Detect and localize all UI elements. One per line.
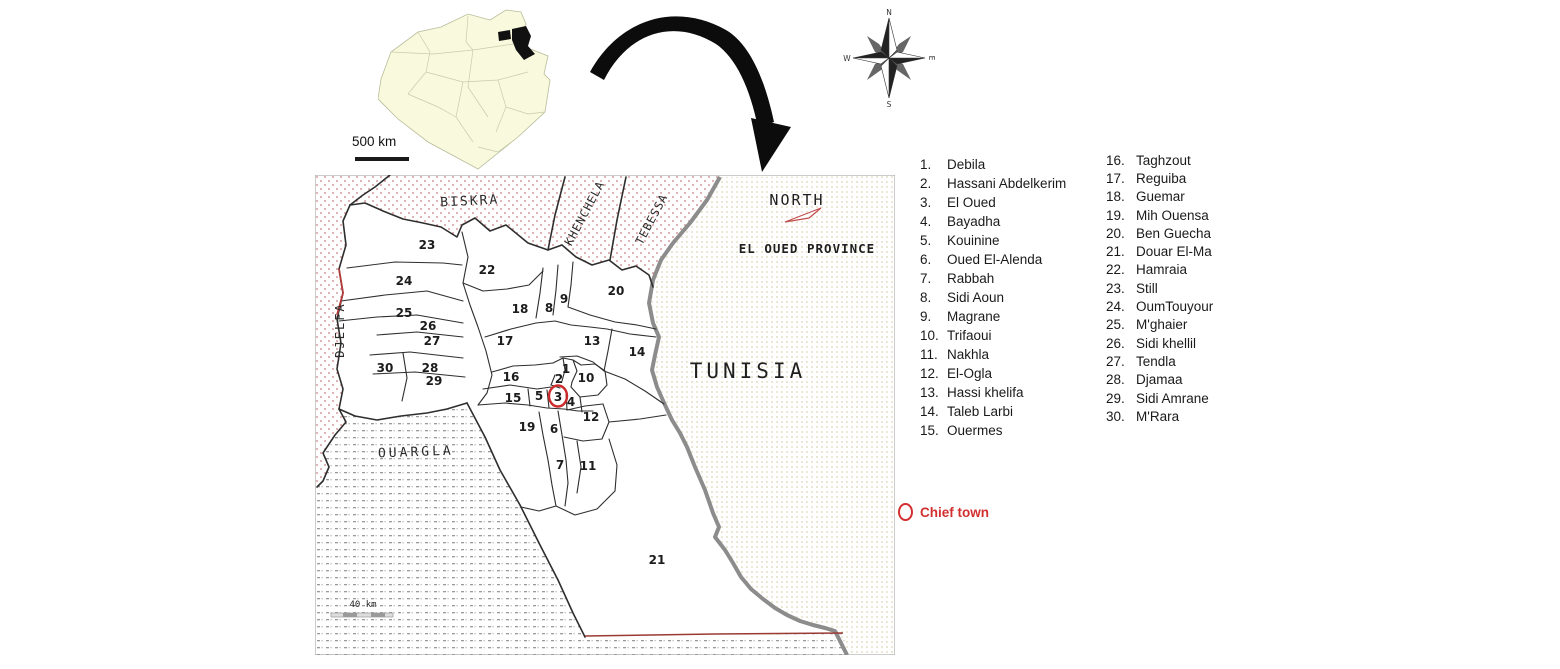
legend-item-name: Still [1136,281,1158,296]
legend-item-number: 4. [920,214,947,229]
district-number-19: 19 [519,420,536,434]
district-number-7: 7 [556,458,564,472]
district-number-8: 8 [545,301,553,315]
legend-item-name: Tendla [1136,354,1176,369]
legend-item-number: 17. [1106,171,1136,186]
legend-item-name: Nakhla [947,347,989,362]
legend-item-number: 15. [920,423,947,438]
legend-item: 27.Tendla [1106,352,1213,370]
legend-item-name: Reguiba [1136,171,1186,186]
legend-item-number: 27. [1106,354,1136,369]
legend-item: 12.El-Ogla [920,364,1066,383]
legend-column-2: 16.Taghzout17.Reguiba18.Guemar19.Mih Oue… [1106,151,1213,425]
chief-town-key-label: Chief town [920,505,989,520]
legend-item: 1.Debila [920,155,1066,174]
district-number-30: 30 [377,361,394,375]
legend-item-name: Oued El-Alenda [947,252,1042,267]
compass-main-points [853,18,925,98]
legend-item: 21.Douar El-Ma [1106,242,1213,260]
legend-item-number: 14. [920,404,947,419]
legend-item: 29.Sidi Amrane [1106,389,1213,407]
legend-item-name: Hassi khelifa [947,385,1024,400]
legend-item-name: Taleb Larbi [947,404,1013,419]
legend-item: 22.Hamraia [1106,261,1213,279]
district-number-27: 27 [424,334,441,348]
district-number-2: 2 [555,372,563,386]
legend-item-number: 18. [1106,189,1136,204]
neighbor-label-biskra: BISKRA [440,192,500,210]
legend-item-name: El-Ogla [947,366,992,381]
legend-item-number: 3. [920,195,947,210]
legend-item-number: 30. [1106,409,1136,424]
el-oued-province-map: NORTH EL OUED PROVINCE TUNISIA 40 km BIS… [315,175,895,655]
legend-item-number: 5. [920,233,947,248]
legend-item-name: Kouinine [947,233,1000,248]
district-number-26: 26 [420,319,437,333]
chief-town-key: Chief town [898,503,989,521]
legend-item: 24.OumTouyour [1106,297,1213,315]
legend-item-name: Sidi Amrane [1136,391,1209,406]
legend-item: 13.Hassi khelifa [920,383,1066,402]
tunisia-label: TUNISIA [690,359,807,383]
locator-arrow [558,0,798,200]
province-map-svg: NORTH EL OUED PROVINCE TUNISIA 40 km BIS… [315,175,895,655]
legend-item-number: 24. [1106,299,1136,314]
legend-item: 4.Bayadha [920,212,1066,231]
legend-item-number: 20. [1106,226,1136,241]
legend-item-name: Rabbah [947,271,994,286]
legend-item-number: 28. [1106,372,1136,387]
legend-item: 2.Hassani Abdelkerim [920,174,1066,193]
legend-item-number: 13. [920,385,947,400]
legend-item-name: Hassani Abdelkerim [947,176,1066,191]
legend-item-number: 11. [920,347,947,362]
legend-item-name: Djamaa [1136,372,1183,387]
legend-item: 18.Guemar [1106,188,1213,206]
district-number-29: 29 [426,374,443,388]
district-number-11: 11 [580,459,597,473]
legend-item: 9.Magrane [920,307,1066,326]
legend-item-number: 8. [920,290,947,305]
district-number-25: 25 [396,306,413,320]
legend-item-name: Bayadha [947,214,1000,229]
district-number-18: 18 [512,302,529,316]
legend-item-name: El Oued [947,195,996,210]
compass-w-label: W [843,54,851,63]
district-number-3: 3 [554,390,562,404]
neighbor-label-ouargla: OUARGLA [378,444,454,462]
compass-rose: N S W E [843,8,935,108]
legend-item-name: Magrane [947,309,1000,324]
legend-item-name: Sidi khellil [1136,336,1196,351]
legend-item-number: 7. [920,271,947,286]
legend-item: 23.Still [1106,279,1213,297]
legend-item: 17.Reguiba [1106,169,1213,187]
legend-item: 7.Rabbah [920,269,1066,288]
legend-item-name: M'ghaier [1136,317,1187,332]
legend-item-number: 23. [1106,281,1136,296]
legend-item-name: Douar El-Ma [1136,244,1212,259]
legend-item-number: 9. [920,309,947,324]
legend-item-number: 19. [1106,208,1136,223]
legend-column-1: 1.Debila2.Hassani Abdelkerim3.El Oued4.B… [920,155,1066,440]
district-number-10: 10 [578,371,595,385]
legend-item-name: Debila [947,157,985,172]
legend-item-name: Guemar [1136,189,1185,204]
legend-item: 20.Ben Guecha [1106,224,1213,242]
chief-town-key-circle-icon [898,503,913,521]
algeria-inset-svg [378,2,562,172]
legend-item-number: 2. [920,176,947,191]
legend-item-name: Hamraia [1136,262,1187,277]
district-number-4: 4 [567,395,575,409]
locator-arrow-body [590,16,774,128]
legend-item: 11.Nakhla [920,345,1066,364]
district-number-5: 5 [535,389,543,403]
legend-item: 8.Sidi Aoun [920,288,1066,307]
legend-item: 14.Taleb Larbi [920,402,1066,421]
legend-item-number: 12. [920,366,947,381]
legend-item-name: Taghzout [1136,153,1191,168]
locator-arrow-head [751,118,791,172]
legend-item-number: 26. [1106,336,1136,351]
district-number-17: 17 [497,334,514,348]
district-number-24: 24 [396,274,413,288]
neighbor-label-djelfa: DJELFA [333,302,347,357]
inset-scale-bar [355,157,409,161]
compass-e-label: E [927,56,935,61]
legend-item-number: 22. [1106,262,1136,277]
legend-item: 10.Trifaoui [920,326,1066,345]
legend-item-number: 25. [1106,317,1136,332]
legend-item-number: 21. [1106,244,1136,259]
province-title-label: EL OUED PROVINCE [739,241,875,256]
legend-item-number: 16. [1106,153,1136,168]
legend-item: 19.Mih Ouensa [1106,206,1213,224]
algeria-inset-map [378,2,562,172]
district-number-14: 14 [629,345,646,359]
legend-item-number: 10. [920,328,947,343]
district-number-6: 6 [550,422,558,436]
figure-canvas: 500 km [0,0,1560,669]
map-scale-label: 40 km [349,600,376,610]
legend-item-name: Sidi Aoun [947,290,1004,305]
district-number-23: 23 [419,238,436,252]
compass-n-label: N [886,8,892,17]
legend-item: 15.Ouermes [920,421,1066,440]
district-number-22: 22 [479,263,496,277]
legend-item: 30.M'Rara [1106,407,1213,425]
district-number-12: 12 [583,410,600,424]
legend-item: 5.Kouinine [920,231,1066,250]
legend-item-name: M'Rara [1136,409,1179,424]
legend-item: 26.Sidi khellil [1106,334,1213,352]
legend-item-number: 1. [920,157,947,172]
legend-item-number: 6. [920,252,947,267]
legend-item-name: Mih Ouensa [1136,208,1209,223]
legend-item-name: Ouermes [947,423,1003,438]
compass-s-label: S [887,100,892,108]
legend-item: 16.Taghzout [1106,151,1213,169]
legend-item-name: Trifaoui [947,328,992,343]
legend-item: 25.M'ghaier [1106,316,1213,334]
legend-item-number: 29. [1106,391,1136,406]
district-number-13: 13 [584,334,601,348]
district-number-21: 21 [649,553,666,567]
district-number-20: 20 [608,284,625,298]
legend-item: 28.Djamaa [1106,371,1213,389]
map-scale-bar [331,613,393,617]
north-label: NORTH [769,191,824,209]
legend-item: 3.El Oued [920,193,1066,212]
legend-item-name: Ben Guecha [1136,226,1211,241]
district-number-28: 28 [422,361,439,375]
district-number-15: 15 [505,391,522,405]
district-number-9: 9 [560,292,568,306]
district-number-16: 16 [503,370,520,384]
legend-item-name: OumTouyour [1136,299,1213,314]
legend-item: 6.Oued El-Alenda [920,250,1066,269]
inset-scale-label: 500 km [352,134,396,149]
